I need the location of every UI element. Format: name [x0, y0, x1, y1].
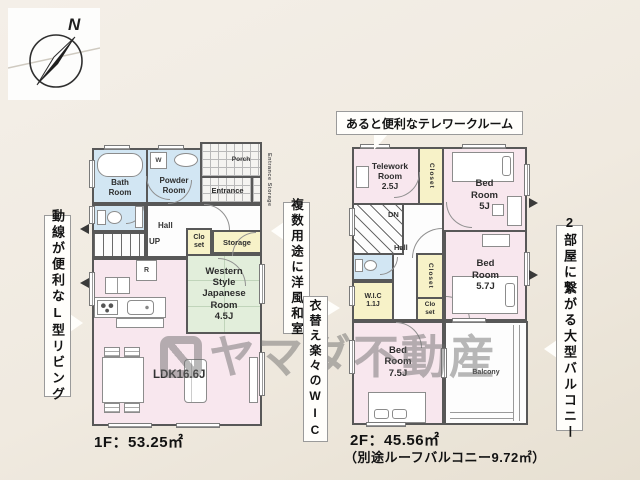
- chair-icon: [104, 403, 120, 413]
- window-marker: [349, 208, 355, 236]
- closet-1f-label: Clo set: [193, 234, 204, 251]
- window-marker: [176, 423, 220, 428]
- floor1-area-label: 1F：53.25㎡: [94, 431, 184, 452]
- toilet-bowl-icon-2f: [364, 260, 377, 271]
- closet-2f-small-label: Clo set: [425, 301, 435, 317]
- closet-2f-top: Closet: [418, 147, 444, 205]
- entrance-label: Entrance: [211, 186, 243, 195]
- wic-room: W.I.C 1.1J: [352, 281, 394, 321]
- closet-2f-mid: Closet: [416, 253, 444, 299]
- cupboard-icon: [105, 277, 130, 294]
- vent-flag-icon: [80, 224, 89, 234]
- entrance-room: Entrance: [200, 176, 255, 204]
- compass-north-label: N: [68, 15, 81, 34]
- pillow-icon: [505, 283, 515, 307]
- powder-room-label: Powder Room: [160, 176, 189, 195]
- ldk-label: LDK16.6J: [153, 369, 205, 381]
- window-marker: [108, 423, 152, 428]
- window-marker: [259, 352, 265, 396]
- japanese-room-label: Western Style Japanese Room 4.5J: [202, 266, 245, 323]
- balcony-label: Balcony: [472, 369, 499, 377]
- washing-machine-icon: W: [150, 152, 167, 169]
- stairs-dn-label: DN: [388, 210, 399, 219]
- pillow-icon: [392, 409, 407, 419]
- callout-pointer: [327, 300, 340, 316]
- stairs-1f: [92, 232, 146, 258]
- pillow-icon: [374, 409, 389, 419]
- window-marker: [349, 286, 355, 306]
- window-marker: [89, 272, 95, 306]
- wc-basin-icon: [135, 206, 143, 228]
- stairs-up-label: UP: [149, 237, 160, 246]
- chair-icon: [124, 403, 140, 413]
- window-marker: [462, 144, 506, 149]
- callout-telework: あると便利なテレワークルーム: [336, 111, 523, 135]
- vent-flag-icon: [529, 198, 538, 208]
- entrance-storage-label: Entrance Storage: [266, 153, 272, 207]
- toilet-tank-icon-2f: [355, 259, 363, 272]
- closet-2f-top-label: Closet: [427, 163, 435, 189]
- window-marker: [349, 340, 355, 374]
- bath-room-label: Bath Room: [109, 178, 132, 197]
- window-marker: [104, 145, 130, 150]
- floor-plan-canvas: N Porch Bath Room Powder Room Entrance C…: [0, 0, 640, 480]
- callout-balcony: 2部屋に繋がる大型バルコニー: [556, 225, 583, 431]
- closet-1f: Clo set: [186, 228, 212, 256]
- japanese-room: Western Style Japanese Room 4.5J: [186, 254, 262, 334]
- bed-room-75j-label: Bed Room 7.5J: [385, 345, 412, 379]
- desk-icon: [482, 234, 510, 247]
- entrance-storage-room: [251, 176, 262, 204]
- closet-2f-small: Clo set: [416, 297, 444, 321]
- tv-board-icon: [249, 357, 258, 403]
- hall-2f-label: Hall: [394, 243, 408, 252]
- vent-flag-icon: [529, 270, 538, 280]
- callout-pointer: [70, 314, 83, 332]
- window-marker: [441, 348, 447, 378]
- bed-room-5j-label: Bed Room 5J: [471, 178, 498, 212]
- bathtub-icon: [97, 153, 143, 177]
- porch-label: Porch: [212, 156, 250, 164]
- chair-icon: [124, 347, 140, 357]
- kitchen-island-icon: [116, 318, 164, 328]
- vent-flag-icon: [80, 278, 89, 288]
- window-marker: [89, 160, 95, 188]
- sofa-icon: [184, 359, 207, 403]
- balcony-rail: [450, 412, 514, 419]
- callout-wic: 衣替え楽々のWIC: [303, 296, 328, 442]
- balcony-rail: [513, 325, 520, 421]
- chair-icon: [104, 347, 120, 357]
- stove-icon: [97, 300, 118, 315]
- window-marker: [89, 206, 95, 224]
- telework-room-label: Telework Room 2.5J: [364, 161, 408, 192]
- porch-room: Porch: [200, 142, 262, 178]
- window-marker: [259, 264, 265, 304]
- window-marker: [158, 145, 184, 150]
- wic-label: W.I.C 1.1J: [364, 293, 381, 310]
- storage-1f-label: Storage: [223, 238, 251, 247]
- window-marker: [524, 252, 530, 286]
- hall-1f-label: Hall: [158, 221, 173, 230]
- window-marker: [452, 318, 486, 323]
- fridge-icon: R: [136, 260, 157, 281]
- compass-icon: N: [8, 8, 100, 100]
- window-marker: [366, 422, 406, 427]
- powder-sink-icon: [174, 153, 198, 167]
- bed-room-57j-label: Bed Room 5.7J: [472, 258, 499, 292]
- floor2-area-note: （別途ルーフバルコニー9.72㎡）: [344, 447, 546, 466]
- toilet-bowl-icon-1f: [107, 211, 122, 224]
- toilet-tank-icon-1f: [97, 210, 106, 225]
- pillow-icon: [502, 156, 511, 176]
- kitchen-sink-icon: [127, 300, 154, 315]
- callout-living: 動線が便利なL型リビング: [44, 215, 71, 397]
- closet-2f-mid-label: Closet: [426, 263, 434, 289]
- callout-pointer: [374, 134, 388, 150]
- window-marker: [524, 164, 530, 196]
- dining-table-icon: [102, 357, 144, 403]
- desk-icon: [507, 196, 522, 226]
